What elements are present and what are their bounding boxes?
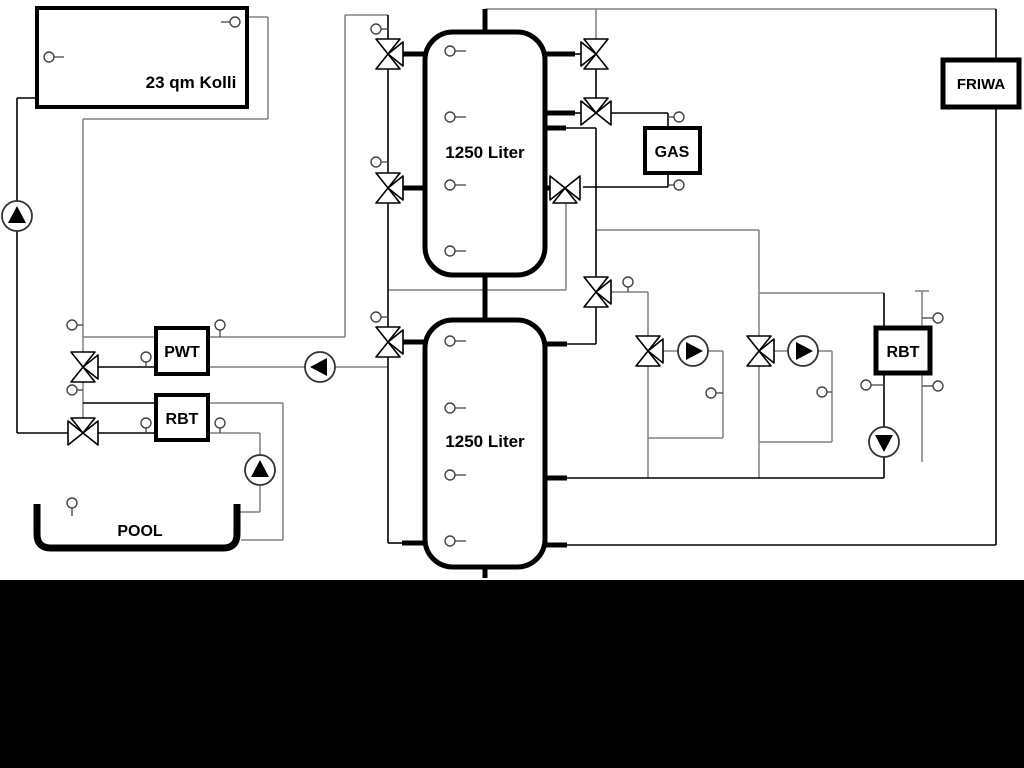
buffer-tank-bottom-label: 1250 Liter (445, 432, 525, 451)
pump-rbt-right-icon (869, 427, 899, 457)
gas-boiler: GAS (645, 128, 700, 173)
fresh-water-station: FRIWA (943, 60, 1019, 107)
fresh-water-station-label: FRIWA (957, 76, 1005, 93)
solar-collector-label: 23 qm Kolli (146, 73, 237, 92)
plate-heat-exchanger-label: PWT (164, 344, 200, 361)
pool-heat-exchanger: RBT (156, 395, 208, 440)
gas-boiler-label: GAS (655, 144, 690, 161)
buffer-tank-bottom: 1250 Liter (425, 320, 545, 567)
pump-solar-icon (2, 201, 32, 231)
pump-circuit-1-icon (678, 336, 708, 366)
pool-label: POOL (117, 523, 163, 540)
schematic-viewer: 23 qm Kolli 1250 Liter 1250 Liter GAS FR… (0, 0, 1024, 768)
solar-collector: 23 qm Kolli (37, 8, 247, 107)
pump-pwt-icon (305, 352, 335, 382)
pool-heat-exchanger-label: RBT (166, 411, 199, 428)
right-heat-exchanger: RBT (876, 328, 930, 373)
buffer-tank-top: 1250 Liter (425, 32, 545, 275)
pump-circuit-2-icon (788, 336, 818, 366)
plate-heat-exchanger: PWT (156, 328, 208, 374)
buffer-tank-top-label: 1250 Liter (445, 143, 525, 162)
letterbox-bar (0, 580, 1024, 768)
right-heat-exchanger-label: RBT (887, 344, 920, 361)
pump-pool-icon (245, 455, 275, 485)
hydraulic-schematic: 23 qm Kolli 1250 Liter 1250 Liter GAS FR… (0, 0, 1024, 768)
